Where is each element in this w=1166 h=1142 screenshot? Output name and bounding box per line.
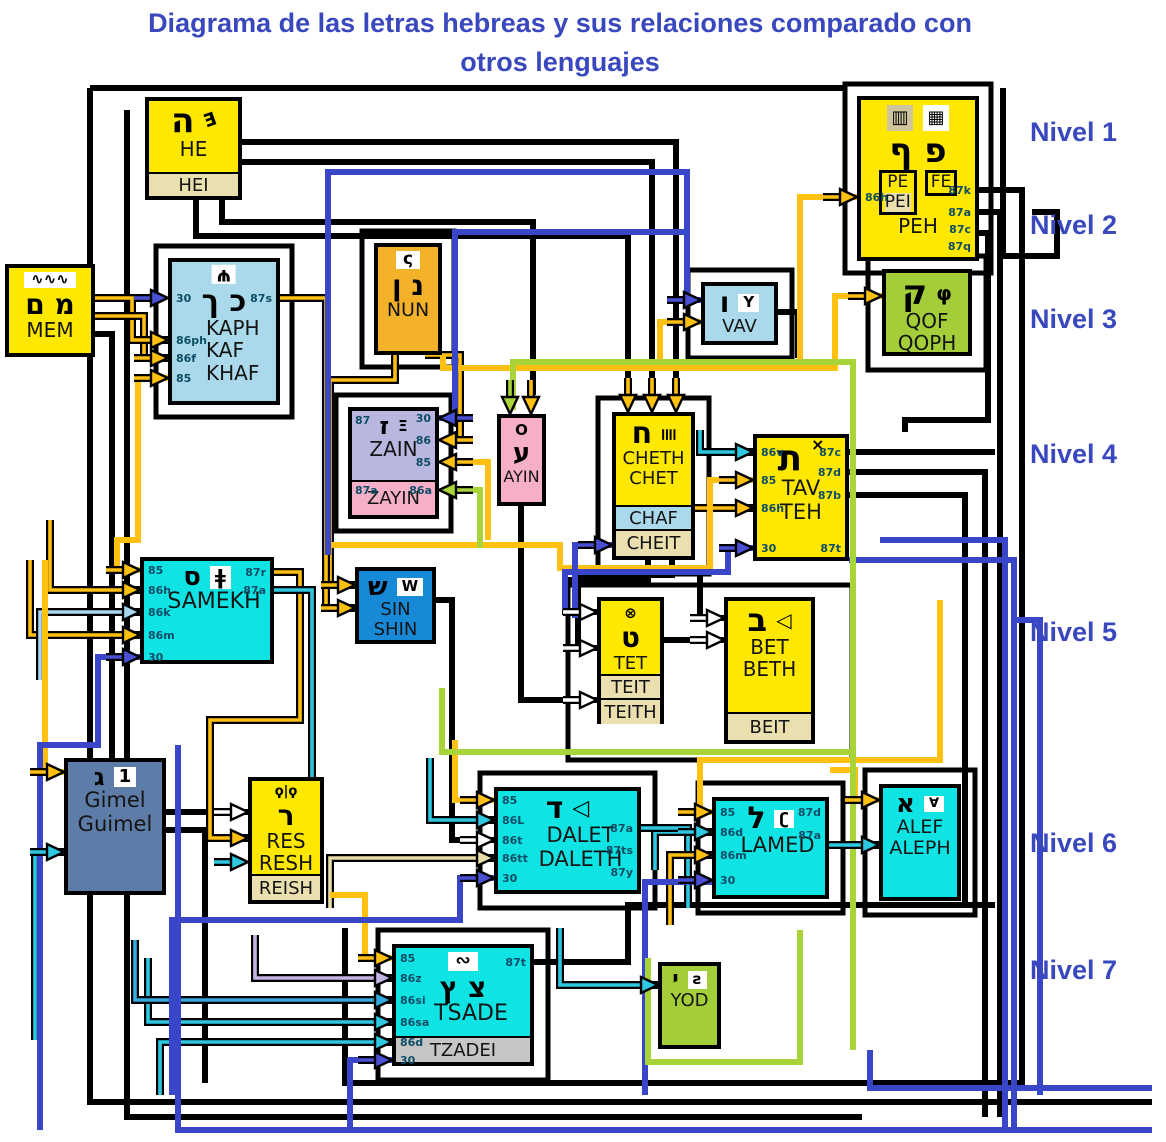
arrow-icon: [678, 804, 712, 820]
letter-name-label: Gimel: [68, 789, 162, 813]
level-label-5: Nivel 5: [1030, 617, 1117, 648]
level-label-1: Nivel 1: [1030, 117, 1117, 148]
arrow-icon: [439, 410, 473, 426]
letter-box-kaph: Ψכ ךKAPHKAFKHAF3086ph86f8587s: [168, 258, 280, 405]
letter-box-samekh: סǂSAMEKH8586h86k86m3087r87a: [140, 557, 274, 664]
connector-wire: [430, 758, 494, 820]
hebrew-letter: ק: [902, 276, 927, 310]
arrow-icon: [620, 378, 636, 412]
alt-name-band: CHAF: [629, 508, 678, 529]
arrow-icon: [460, 812, 494, 828]
arrow-icon: [460, 792, 494, 808]
letter-box-zain: זΞZAINZAYIN87a86a87308685: [348, 407, 439, 519]
letter-name-label: CHETH: [616, 449, 691, 469]
letter-box-gimel: ג1GimelGuimel: [64, 758, 166, 895]
letter-name-label: MEM: [9, 319, 91, 341]
arrow-icon: [460, 832, 494, 848]
pictograph-icon: ▥: [887, 105, 913, 131]
connector-wire: [148, 958, 392, 1022]
connector-wire: [148, 958, 392, 1022]
hebrew-letter: ס: [183, 564, 201, 590]
letter-name-label: CHET: [616, 469, 691, 489]
code-label: 86z: [400, 973, 422, 984]
code-label: 87k: [948, 185, 971, 196]
arrow-icon: [214, 804, 248, 820]
pictograph-icon: ▦: [923, 105, 949, 131]
letter-box-tet: ⊗טTETTEITTEITH: [597, 597, 664, 724]
hebrew-letter: י: [672, 969, 678, 991]
arrow-icon: [719, 472, 753, 488]
arrow-icon: [719, 444, 753, 460]
code-label: 87y: [611, 867, 633, 878]
code-label: 86sa: [400, 1017, 429, 1028]
code-label: 86k: [148, 607, 171, 618]
code-label: 87d: [798, 807, 821, 818]
letter-name-label: HE: [149, 138, 238, 160]
level-label-2: Nivel 2: [1030, 210, 1117, 241]
hebrew-letter: נ ן: [392, 272, 424, 300]
code-label: 86ph: [176, 335, 207, 346]
hebrew-letter: מ ם: [25, 291, 75, 319]
code-label: 86tt: [502, 853, 528, 864]
ancient-glyph-icon: ∿∿∿: [24, 272, 76, 288]
letter-name-label: SIN: [359, 600, 432, 620]
code-label: 86t: [502, 835, 523, 846]
arrow-icon: [214, 830, 248, 846]
alt-name-band: TEIT: [611, 677, 650, 698]
letter-box-res: ϙ|ϙרRESRESHREISH: [248, 777, 324, 904]
letter-name-label: Guimel: [68, 813, 162, 837]
ancient-glyph-icon: ◁: [572, 798, 589, 820]
ancient-glyph-icon: φ: [936, 283, 952, 303]
code-label: 86si: [400, 995, 426, 1006]
hebrew-letter: א: [896, 791, 915, 817]
letter-name-label: AYIN: [501, 468, 542, 486]
letter-box-dalet: ד◁DALETDALETH8586L86t86tt3087a87ts87y: [494, 787, 641, 894]
connector-wire: [330, 858, 494, 908]
connector-wire: [330, 858, 494, 908]
arrow-icon: [624, 977, 658, 993]
connector-wire: [160, 1042, 392, 1095]
letter-box-yod: יƨYOD: [658, 962, 721, 1049]
ancient-glyph-icon: W: [397, 578, 424, 596]
letter-name-label: QOF: [886, 310, 968, 332]
letter-name-label: ALEPH: [883, 838, 957, 859]
arrow-icon: [439, 454, 473, 470]
letter-box-shin: שWSINSHIN: [355, 567, 436, 644]
arrow-icon: [358, 992, 392, 1008]
hebrew-letter: פ ף: [889, 134, 946, 168]
diagram-canvas: Diagrama de las letras hebreas y sus rel…: [0, 0, 1166, 1142]
alt-name-band: HEI: [178, 175, 208, 196]
level-label-6: Nivel 6: [1030, 828, 1117, 859]
arrow-icon: [439, 432, 473, 448]
code-label: 87c: [819, 447, 841, 458]
letter-box-cheth: ח≣CHETHCHETCHAFCHEIT: [612, 412, 695, 560]
letter-box-lamed: לʗLAMED8586d86m3087d87a: [712, 797, 829, 899]
code-label: 86h: [148, 585, 171, 596]
ancient-glyph-icon: Y: [738, 294, 759, 312]
code-label: 86d: [400, 1037, 423, 1048]
arrow-icon: [460, 850, 494, 866]
ancient-glyph-icon: Ξ: [398, 419, 407, 434]
code-label: 86h: [761, 503, 784, 514]
arrow-icon: [668, 378, 684, 412]
page-title: Diagrama de las letras hebreas y sus rel…: [0, 4, 1120, 82]
arrow-icon: [134, 350, 168, 366]
ancient-glyph-icon: Ο: [515, 423, 528, 438]
ancient-glyph-icon: Ǝ: [201, 110, 219, 131]
ancient-glyph-icon: ϙ|ϙ: [268, 785, 305, 799]
ancient-glyph-icon: ≣: [660, 427, 677, 441]
code-label: 87a: [610, 823, 633, 834]
code-label: 30: [148, 652, 163, 663]
letter-name-label: RESH: [252, 852, 320, 874]
arrow-icon: [358, 970, 392, 986]
letter-box-mem: ∿∿∿מ םMEM: [5, 264, 95, 357]
alt-name-band: TZADEI: [430, 1040, 496, 1061]
arrow-icon: [460, 870, 494, 886]
hebrew-letter: ע: [513, 438, 530, 468]
code-label: 30: [176, 293, 191, 304]
arrow-icon: [214, 854, 248, 870]
code-label: 85: [148, 565, 163, 576]
arrow-icon: [690, 632, 724, 648]
arrow-icon: [523, 380, 539, 414]
letter-box-he: הƎHEHEI: [145, 97, 242, 200]
arrow-icon: [667, 314, 701, 330]
letter-box-tav: ת×TAVTEH86v8586h3087c87d87b87t: [753, 434, 849, 561]
level-label-3: Nivel 3: [1030, 304, 1117, 335]
letter-box-nun: ςנ ןNUN: [374, 243, 442, 355]
letter-box-alef: א∀ALEFALEPH: [879, 784, 961, 901]
letter-name-label: RES: [252, 830, 320, 852]
connector-wire: [430, 758, 494, 820]
code-label: 87t: [820, 543, 841, 554]
letter-box-vav: וYVAV: [701, 282, 778, 345]
ancient-glyph-icon: ς: [396, 251, 420, 269]
page-title-line1: Diagrama de las letras hebreas y sus rel…: [0, 4, 1120, 43]
arrow-icon: [578, 537, 612, 553]
ancient-glyph-icon: ƨ: [688, 971, 707, 989]
code-label: 30: [720, 875, 735, 886]
ancient-glyph-icon: ∾: [448, 952, 477, 971]
arrow-icon: [439, 482, 473, 498]
hebrew-letter: ה: [171, 104, 194, 138]
alt-name-band: REISH: [259, 878, 313, 899]
ancient-glyph-icon: ∀: [924, 796, 944, 812]
ancient-glyph-icon: ǂ: [210, 566, 231, 589]
code-label: 86L: [502, 815, 524, 826]
hebrew-letter: ש: [368, 574, 388, 600]
letter-name-label: YOD: [662, 991, 717, 1011]
code-label: 86m: [148, 630, 175, 641]
arrow-icon: [823, 189, 857, 205]
ancient-glyph-icon: Ψ: [212, 265, 236, 284]
code-label: 85: [176, 373, 191, 384]
ancient-glyph-icon: 1: [114, 767, 137, 788]
hebrew-letter: ל: [747, 804, 765, 834]
code-label: 86a: [409, 484, 432, 497]
code-label: 85: [502, 795, 517, 806]
code-label: 85: [720, 807, 735, 818]
code-label: 85: [416, 457, 431, 468]
connector-wire: [778, 312, 798, 358]
arrow-icon: [719, 500, 753, 516]
ancient-glyph-icon: ⊗: [624, 606, 637, 621]
code-label: 87ts: [606, 845, 633, 856]
letter-name-label: NUN: [378, 300, 438, 321]
hebrew-letter: ו: [720, 289, 730, 317]
arrow-icon: [719, 540, 753, 556]
alt-name-band: TEITH: [604, 702, 656, 723]
connector-wire: [160, 1042, 392, 1095]
connector-wire: [521, 506, 597, 700]
letter-name-label: BETH: [728, 658, 811, 680]
letter-name-label: TET: [601, 654, 660, 674]
alt-name-label: PEI: [885, 193, 911, 213]
connector-wire: [641, 828, 688, 908]
letter-name-label: SHIN: [359, 620, 432, 640]
arrow-icon: [134, 290, 168, 306]
arrow-icon: [358, 1034, 392, 1050]
connector-wire: [800, 197, 857, 368]
arrow-icon: [690, 610, 724, 626]
level-label-4: Nivel 4: [1030, 439, 1117, 470]
level-label-7: Nivel 7: [1030, 955, 1117, 986]
code-label: 87b: [818, 490, 841, 501]
arrow-icon: [358, 1052, 392, 1068]
code-label: 30: [761, 543, 776, 554]
code-label: 87: [355, 414, 370, 427]
code-label: 87a: [798, 830, 821, 841]
arrow-icon: [678, 872, 712, 888]
ancient-glyph-icon: ʗ: [774, 810, 793, 829]
letter-box-peh: ▥▦פ ףPEPEIFEPEH86h87k87a87c87q: [857, 96, 979, 261]
code-label: 87a: [243, 585, 266, 596]
code-label: 86m: [720, 850, 747, 861]
connector-wire: [641, 828, 688, 908]
code-label: 30: [416, 413, 431, 424]
code-label: 30: [502, 873, 517, 884]
hebrew-letter: ט: [621, 621, 640, 654]
code-label: 86v: [761, 447, 783, 458]
code-label: 87s: [250, 293, 272, 304]
code-label: 87a: [355, 484, 378, 497]
code-label: 87c: [949, 224, 971, 235]
page-title-line2: otros lenguajes: [0, 43, 1120, 82]
code-label: 87d: [818, 467, 841, 478]
code-label: 87r: [245, 567, 266, 578]
hebrew-letter: ח: [632, 419, 653, 449]
code-label: 87t: [505, 957, 526, 968]
code-label: 85: [400, 953, 415, 964]
hebrew-letter: כ ך: [202, 287, 247, 317]
code-label: 87q: [948, 241, 971, 252]
hebrew-letter: ב: [748, 604, 768, 636]
code-label: 86f: [176, 353, 196, 364]
letter-name-label: VAV: [705, 317, 774, 337]
hebrew-letter: צ ץ: [440, 974, 487, 1002]
letter-name-label: ALEF: [883, 817, 957, 838]
hebrew-letter: ר: [278, 802, 295, 830]
code-label: 86d: [720, 827, 743, 838]
letter-name-label: QOPH: [886, 332, 968, 354]
code-label: 85: [761, 475, 776, 486]
arrow-icon: [30, 764, 64, 780]
hebrew-letter: ד: [546, 794, 564, 824]
hebrew-letter: ג: [94, 765, 105, 789]
arrow-icon: [667, 292, 701, 308]
hebrew-letter: ז: [379, 414, 389, 438]
letter-box-qof: קφQOFQOPH: [882, 269, 972, 356]
arrow-icon: [678, 847, 712, 863]
code-label: 86: [416, 435, 431, 446]
code-label: 87a: [948, 207, 971, 218]
letter-box-tsade: ∾צ ץTSADETZADEI8586z86si86sa86d3087t: [392, 944, 534, 1066]
letter-box-ayin: ΟעAYIN: [497, 414, 546, 506]
arrow-icon: [134, 332, 168, 348]
arrow-icon: [848, 288, 882, 304]
connector-wire: [330, 895, 392, 958]
alt-name-band: CHEIT: [627, 533, 681, 554]
alt-name-label: PE: [885, 173, 911, 193]
arrow-icon: [644, 378, 660, 412]
letter-name-label: BET: [728, 636, 811, 658]
code-label: 86h: [865, 192, 888, 203]
arrow-icon: [358, 1014, 392, 1030]
letter-box-bet: ב◁BETBETHBEIT: [724, 597, 815, 744]
alt-name-band: BEIT: [749, 717, 789, 738]
code-label: 30: [400, 1055, 415, 1066]
ancient-glyph-icon: ◁: [776, 610, 791, 630]
